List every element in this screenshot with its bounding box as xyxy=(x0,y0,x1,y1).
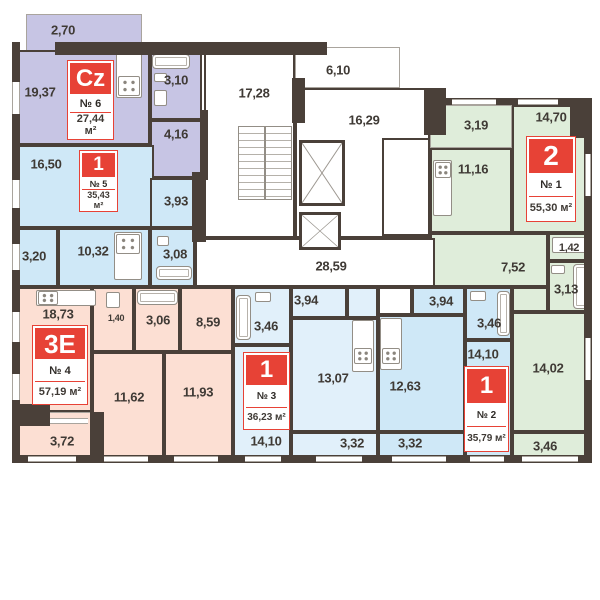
apartment-area: 36,23 м² xyxy=(246,408,287,427)
area-label: 14,02 xyxy=(532,361,563,376)
area-label: 3,19 xyxy=(464,118,488,133)
sink xyxy=(255,292,271,302)
apartment-badge-3[interactable]: 1 № 3 36,23 м² xyxy=(243,352,290,430)
area-label-corridor: 28,59 xyxy=(315,259,346,274)
apartment-area: 55,30 м² xyxy=(529,197,573,219)
apartment-number: № 3 xyxy=(246,387,287,407)
wall-pillar-2 xyxy=(570,102,592,138)
apartment-type: 1 xyxy=(246,355,287,385)
apt4-room-2 xyxy=(164,352,233,462)
bathtub xyxy=(137,290,178,305)
window xyxy=(245,456,281,462)
toilet xyxy=(106,292,120,308)
area-label: 3,32 xyxy=(398,436,422,451)
stove-icon xyxy=(38,291,58,305)
wall-fill-1 xyxy=(192,172,206,242)
sink xyxy=(157,236,169,246)
area-label: 11,62 xyxy=(114,390,144,405)
stove-icon xyxy=(382,348,400,364)
apt1-hallway xyxy=(430,233,548,287)
stove-icon xyxy=(435,162,451,178)
window xyxy=(12,180,20,208)
area-label: 13,07 xyxy=(317,371,348,386)
area-label: 4,16 xyxy=(164,127,188,142)
area-label: 3,06 xyxy=(146,313,170,328)
area-label: 11,93 xyxy=(183,385,213,400)
apartment-badge-2[interactable]: 1 № 2 35,79 м² xyxy=(464,366,509,452)
apartment-type: Cz xyxy=(70,63,111,94)
apartment-type: 1 xyxy=(467,369,506,403)
window xyxy=(12,374,20,400)
area-label: 14,10 xyxy=(467,347,498,362)
area-label: 18,73 xyxy=(42,307,73,322)
apartment-number: № 1 xyxy=(529,175,573,198)
window xyxy=(316,456,362,462)
area-label: 1,42 xyxy=(559,242,579,254)
apartment-type: 1 xyxy=(82,153,115,177)
area-label: 11,16 xyxy=(458,162,488,177)
toilet xyxy=(154,90,167,106)
area-label: 2,70 xyxy=(51,23,75,38)
utility-shaft-large xyxy=(382,138,430,236)
area-label: 7,52 xyxy=(501,260,525,275)
window xyxy=(452,99,496,105)
bathtub xyxy=(156,266,192,280)
apartment-number: № 2 xyxy=(467,405,506,428)
stairs-divider xyxy=(264,126,266,200)
stove-icon xyxy=(116,234,140,254)
stove-icon xyxy=(354,348,372,364)
window xyxy=(12,312,20,342)
area-label: 12,63 xyxy=(389,379,420,394)
apartment-number: № 5 xyxy=(82,179,115,190)
wall-pillar-4 xyxy=(90,412,104,462)
stove-icon xyxy=(118,76,140,96)
apartment-number: № 6 xyxy=(70,96,111,113)
window xyxy=(104,456,148,462)
area-label: 3,13 xyxy=(554,282,578,297)
wall-pillar-3 xyxy=(292,78,305,123)
area-label: 3,08 xyxy=(163,247,187,262)
elevator-2 xyxy=(299,212,341,250)
area-label: 3,46 xyxy=(477,316,501,331)
area-label-lobby: 16,29 xyxy=(348,113,379,128)
apartment-badge-4[interactable]: 3E № 4 57,19 м² xyxy=(32,325,88,405)
apartment-area: 57,19 м² xyxy=(35,382,85,402)
apt1-hallway-strip xyxy=(512,287,548,312)
wall-pillar-1 xyxy=(424,88,446,135)
area-label: 3,46 xyxy=(254,319,278,334)
kitchen-counter xyxy=(352,320,374,372)
window xyxy=(50,418,88,424)
bathtub xyxy=(236,295,251,340)
area-label-stairs: 17,28 xyxy=(238,86,269,101)
sink xyxy=(551,265,565,274)
window xyxy=(12,244,20,270)
area-label: 3,20 xyxy=(22,249,46,264)
apartment-badge-5[interactable]: 1 № 5 35,43 м² xyxy=(79,150,118,212)
area-label: 14,10 xyxy=(250,434,281,449)
window xyxy=(518,99,558,105)
area-label: 3,32 xyxy=(340,436,364,451)
wall-fill-2 xyxy=(200,110,208,180)
area-label: 19,37 xyxy=(24,85,55,100)
area-label: 16,50 xyxy=(30,157,61,172)
sink xyxy=(470,291,486,301)
wall-top xyxy=(55,42,327,55)
apartment-number: № 4 xyxy=(35,361,85,382)
utility-shaft-small xyxy=(378,287,412,315)
area-label: 3,94 xyxy=(429,294,453,309)
window xyxy=(392,456,446,462)
apartment-badge-6[interactable]: Cz № 6 27,44 м² xyxy=(67,60,114,140)
bathtub xyxy=(152,54,190,69)
area-label: 3,10 xyxy=(164,73,188,88)
apt3-kitchen-niche xyxy=(347,287,378,318)
window xyxy=(522,456,578,462)
apartment-area: 35,43 м² xyxy=(82,190,115,210)
apartment-area: 35,79 м² xyxy=(467,427,506,449)
area-label: 14,70 xyxy=(535,110,566,125)
apartment-type: 3E xyxy=(35,328,85,359)
area-label: 10,32 xyxy=(77,244,108,259)
area-label: 1,40 xyxy=(108,313,124,323)
window xyxy=(174,456,218,462)
area-label-terrace: 6,10 xyxy=(326,63,350,78)
area-label: 3,72 xyxy=(50,434,74,449)
elevator-1 xyxy=(299,140,345,206)
window xyxy=(585,154,591,196)
window xyxy=(470,456,504,462)
window xyxy=(28,456,76,462)
area-label: 3,93 xyxy=(164,194,188,209)
area-label: 3,46 xyxy=(533,439,557,454)
area-label: 8,59 xyxy=(196,315,220,330)
floor-plan: 2,70 19,37 3,10 4,16 16,50 3,93 3,20 10,… xyxy=(0,0,600,600)
window xyxy=(12,82,20,114)
elevator-cross-icon xyxy=(302,143,342,203)
apartment-area: 27,44 м² xyxy=(70,113,111,137)
elevator-cross-icon xyxy=(302,215,338,247)
area-label: 3,94 xyxy=(294,293,318,308)
apartment-badge-1[interactable]: 2 № 1 55,30 м² xyxy=(526,136,576,222)
apartment-type: 2 xyxy=(529,139,573,173)
window xyxy=(585,338,591,380)
wall-balcony-block xyxy=(14,404,50,426)
